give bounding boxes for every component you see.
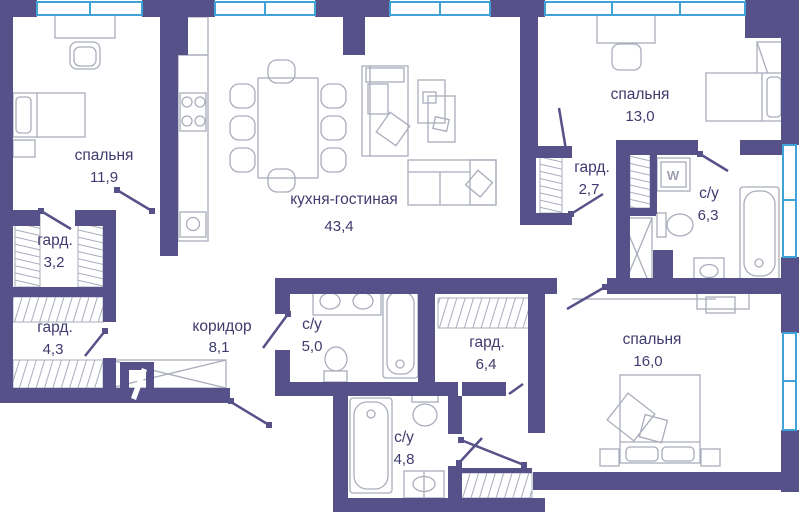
bathtub (350, 398, 392, 493)
window (545, 2, 745, 15)
chair (268, 169, 295, 192)
armchair (418, 80, 445, 123)
desk (55, 14, 115, 38)
door-bedroom-3 (567, 287, 605, 309)
room-area-kitchen-living: 43,4 (324, 218, 353, 235)
sofa (408, 160, 496, 205)
chair (230, 84, 255, 108)
bathroom-1-fixtures (313, 288, 418, 382)
toilet (325, 347, 347, 371)
room-area-bathroom-1: 5,0 (302, 338, 323, 355)
chair (230, 116, 255, 140)
door-hall (509, 384, 523, 394)
door-bathroom-1 (263, 314, 288, 348)
room-area-bedroom-1: 11,9 (90, 169, 118, 186)
shelf (438, 298, 530, 328)
toilet-tank (324, 371, 347, 382)
room-area-bathroom-3: 4,8 (394, 451, 415, 468)
room-area-bathroom-2: 6,3 (698, 207, 719, 224)
room-label-bedroom-1: спальня (75, 147, 134, 164)
door-wardrobe-4 (461, 440, 524, 465)
toilet (413, 404, 437, 426)
door-bedroom-1 (117, 190, 152, 211)
shelf (13, 360, 103, 388)
door-bathroom-2 (700, 154, 728, 171)
room-label-wardrobe-4: гард. (469, 334, 505, 351)
door-wardrobe-2 (85, 331, 105, 356)
desk (597, 13, 655, 43)
dresser (697, 292, 749, 309)
bedroom-3-furniture (572, 292, 749, 466)
tv-unit (362, 66, 408, 156)
bathtub (383, 288, 418, 378)
room-label-bathroom-2: с/у (699, 185, 719, 202)
room-label-corridor: коридор (192, 318, 251, 335)
chair (230, 148, 255, 172)
room-label-bathroom-1: с/у (302, 316, 322, 333)
floor-plan-page: спальня 11,9 гард. 3,2 гард. 4,3 кухня-г… (0, 0, 799, 512)
washer-label: W (667, 168, 680, 183)
room-area-wardrobe-2: 4,3 (43, 341, 64, 358)
entry-door-swing (231, 402, 269, 425)
armchair (376, 112, 409, 145)
room-label-kitchen-living: кухня-гостиная (290, 191, 398, 208)
nightstand (701, 449, 720, 466)
room-area-wardrobe-4: 6,4 (476, 356, 497, 373)
shelf (630, 153, 650, 208)
chair (321, 116, 346, 140)
room-label-bedroom-3: спальня (623, 331, 682, 348)
bed (13, 93, 85, 137)
room-area-corridor: 8,1 (209, 339, 230, 356)
chair-seat (74, 47, 96, 66)
chair (321, 84, 346, 108)
nightstand (13, 140, 35, 157)
living-zone (362, 66, 496, 205)
door-wardrobe-1 (41, 211, 71, 229)
room-area-wardrobe-1: 3,2 (44, 254, 65, 271)
bedroom-1-furniture (13, 14, 115, 157)
dining-set (230, 60, 346, 192)
bed (706, 73, 784, 121)
room-label-wardrobe-3: гард. (574, 159, 610, 176)
room-area-wardrobe-3: 2,7 (579, 181, 600, 198)
kitchen-sink (180, 212, 206, 237)
shelf (460, 473, 532, 498)
chair (612, 44, 641, 70)
nightstand (600, 449, 619, 466)
toilet-tank (657, 213, 666, 237)
chair (268, 60, 295, 83)
room-area-bedroom-3: 16,0 (633, 353, 662, 370)
room-area-bedroom-2: 13,0 (625, 108, 654, 125)
sink (353, 293, 373, 309)
chair (321, 148, 346, 172)
toilet (667, 214, 693, 236)
shelf (540, 153, 562, 213)
room-label-bathroom-3: с/у (394, 429, 414, 446)
sink (320, 293, 340, 309)
room-label-bedroom-2: спальня (611, 86, 670, 103)
dining-table (258, 78, 318, 178)
counter (178, 55, 208, 241)
room-label-wardrobe-2: гард. (37, 319, 73, 336)
bathtub (740, 187, 779, 280)
door-bedroom-2 (559, 108, 566, 150)
room-label-wardrobe-1: гард. (37, 232, 73, 249)
floor-plan: спальня 11,9 гард. 3,2 гард. 4,3 кухня-г… (0, 0, 799, 512)
